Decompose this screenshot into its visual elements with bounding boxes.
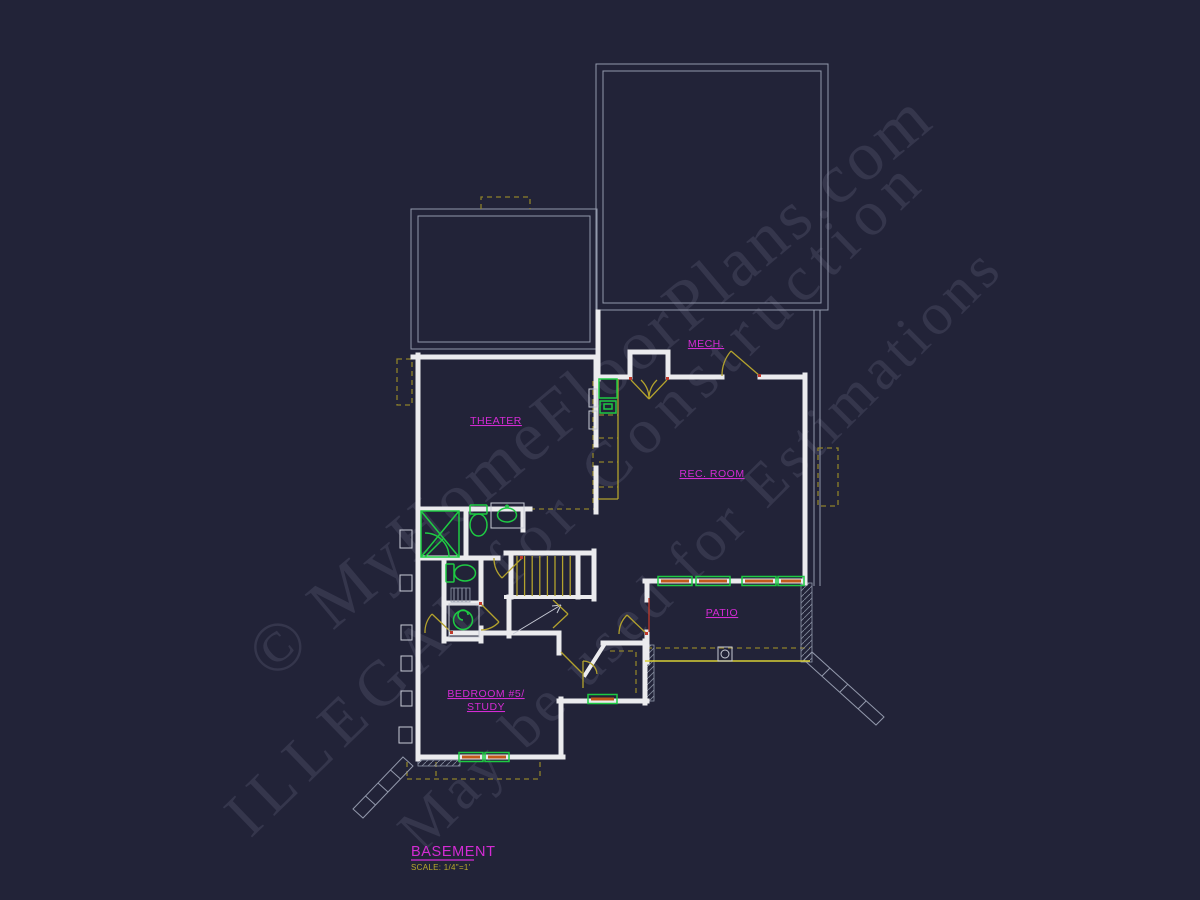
floor-plan-canvas: © MyHomeFloorPlans.com ILLEGAL for Const…: [0, 0, 1200, 900]
patio-right-wall: [801, 583, 812, 662]
drawing-scale: SCALE: 1/4"=1': [411, 863, 471, 872]
label-rec-room: REC. ROOM: [679, 468, 744, 480]
label-bedroom-line2: STUDY: [467, 701, 505, 713]
label-mech: MECH.: [688, 338, 724, 350]
bedroom-wall-hatch: [418, 760, 460, 766]
label-patio: PATIO: [706, 607, 738, 619]
label-bedroom-line1: BEDROOM #5/: [447, 688, 524, 700]
drawing-title: BASEMENT: [411, 844, 496, 860]
label-theater: THEATER: [470, 415, 522, 427]
water-heater-platform: [451, 588, 470, 602]
